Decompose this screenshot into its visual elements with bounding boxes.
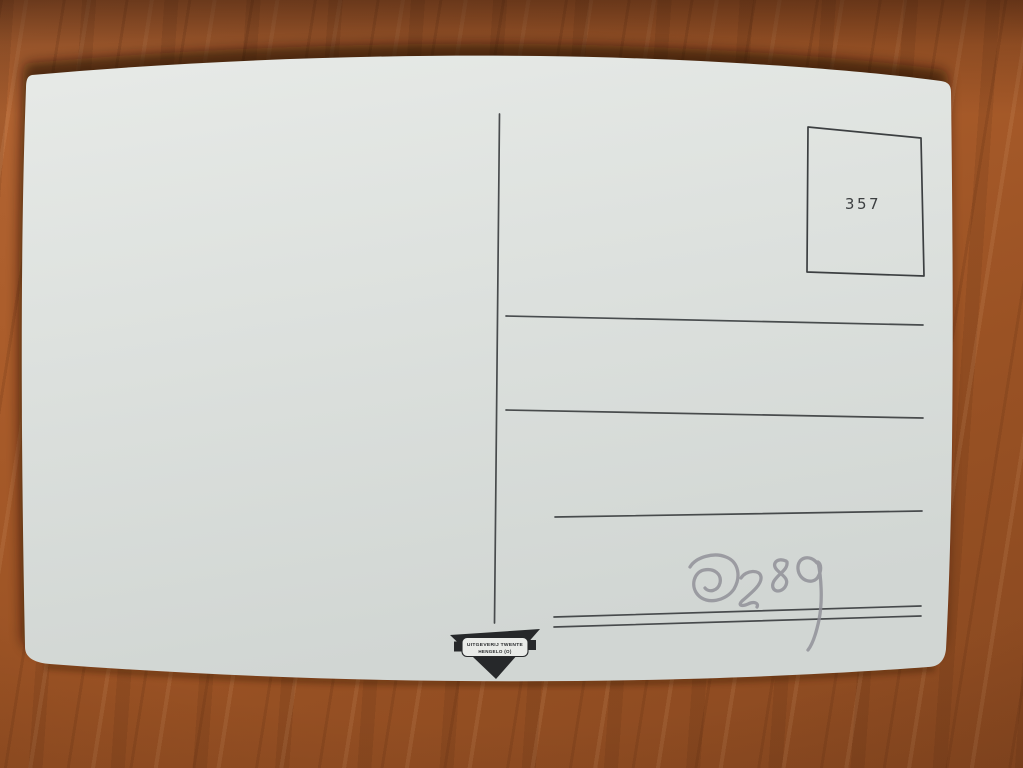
postcard-face	[22, 56, 953, 682]
wood-table-background: 357 UITGEVERIJ TWENTE HENGELO (O) 0289	[0, 0, 1023, 768]
publisher-mark-text-line1: UITGEVERIJ TWENTE	[467, 642, 524, 648]
stamp-box-number: 357	[845, 195, 881, 213]
postcard-photo: 357 UITGEVERIJ TWENTE HENGELO (O) 0289	[0, 0, 1023, 768]
publisher-mark-text-line2: HENGELO (O)	[478, 649, 512, 654]
